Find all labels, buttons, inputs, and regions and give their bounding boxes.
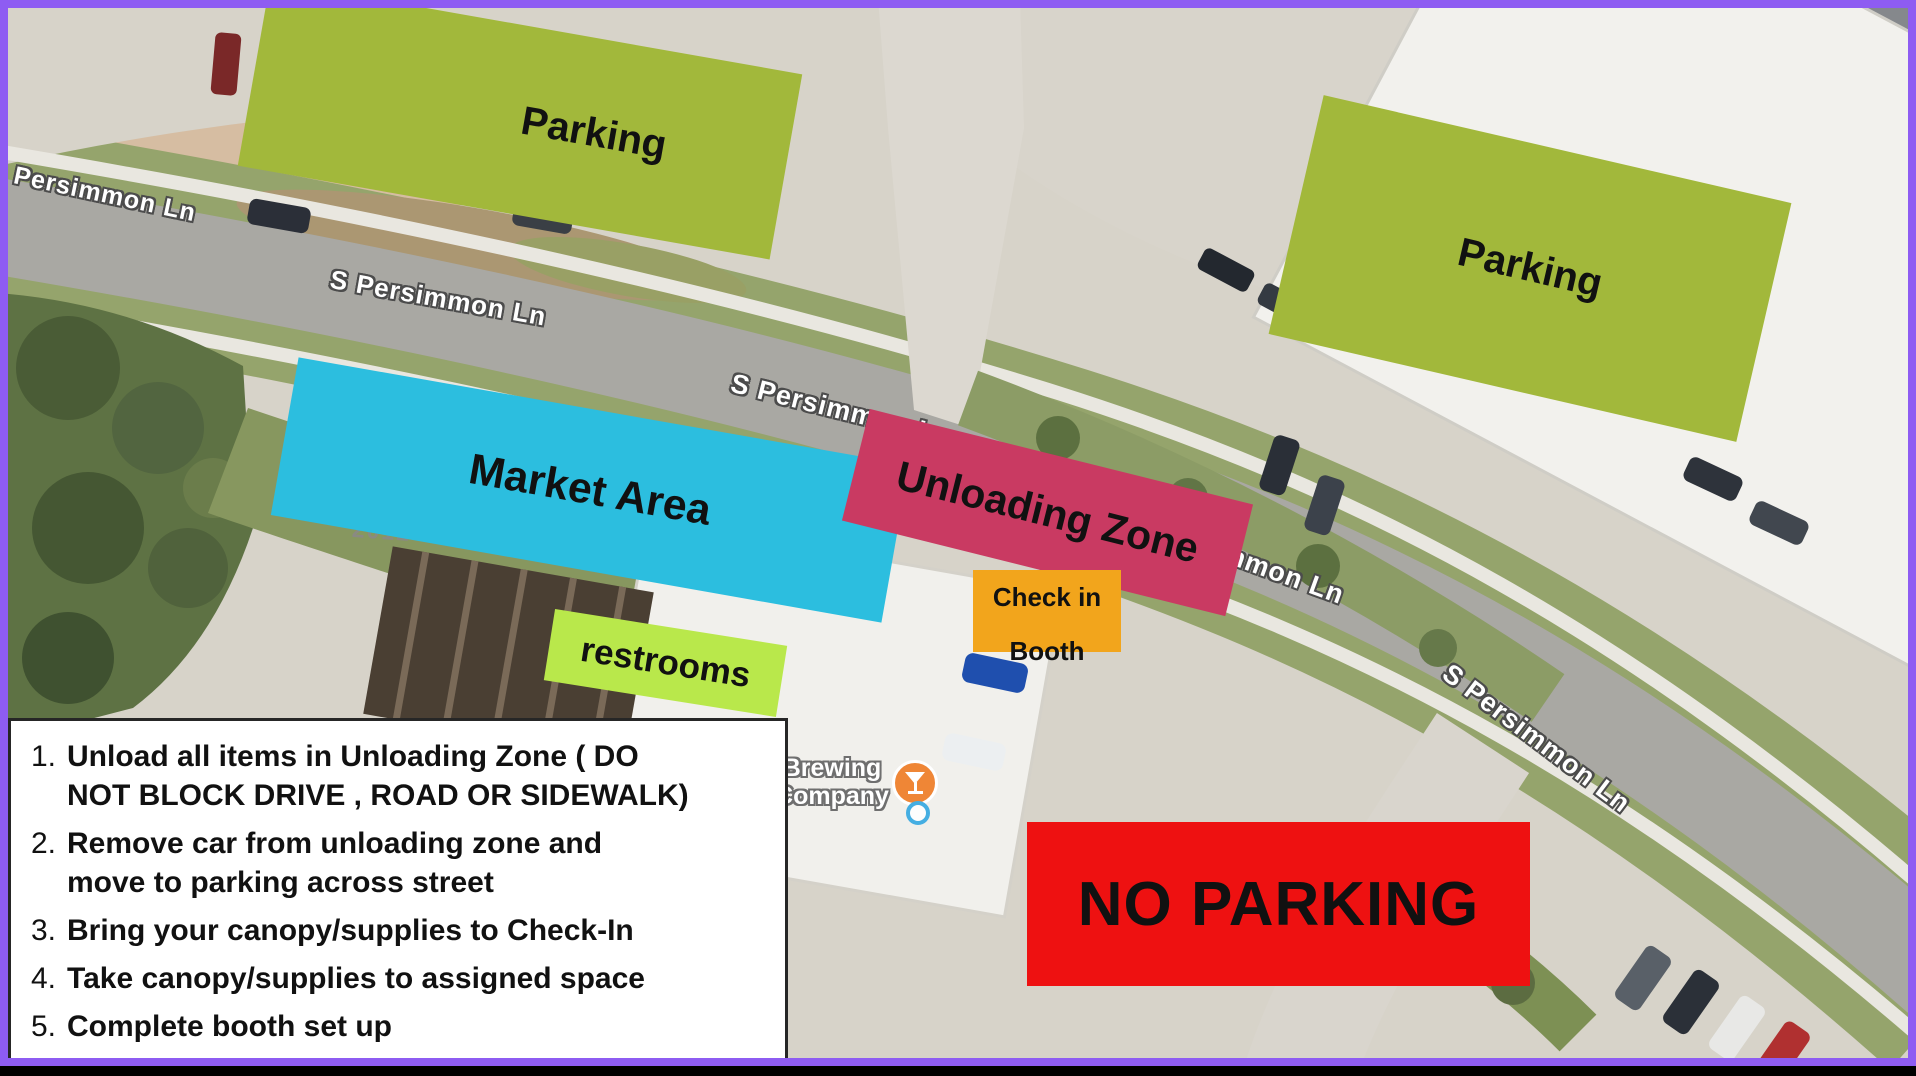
zone-no-parking-label: NO PARKING [1078,869,1480,940]
zone-check-in-booth: Check in Booth [973,570,1121,652]
zone-market-area-label: Market Area [465,445,714,536]
instruction-text: Unload all items in Unloading Zone ( DON… [67,737,689,815]
instruction-text: Remove car from unloading zone andmove t… [67,824,602,902]
instructions-list: 1.Unload all items in Unloading Zone ( D… [31,737,767,1046]
map-canvas: S Persimmon Ln S Persimmon Ln S Persimmo… [8,8,1908,1058]
instruction-item-3: 3.Bring your canopy/supplies to Check-In [31,911,767,950]
brewery-poi-pin [892,760,938,806]
zone-check-in-booth-label-line1: Check in [993,582,1101,612]
instruction-text: Take canopy/supplies to assigned space [67,959,645,998]
zone-no-parking: NO PARKING [1027,822,1530,986]
instruction-number: 4. [31,959,67,998]
zone-parking-northwest-label: Parking [518,98,670,168]
map-frame: S Persimmon Ln S Persimmon Ln S Persimmo… [0,0,1916,1066]
instruction-item-1: 1.Unload all items in Unloading Zone ( D… [31,737,767,815]
instruction-number: 2. [31,824,67,902]
instructions-panel: 1.Unload all items in Unloading Zone ( D… [8,718,788,1061]
instruction-item-2: 2. Remove car from unloading zone andmov… [31,824,767,902]
instruction-text: Complete booth set up [67,1007,392,1046]
brewery-poi-dot [906,801,930,825]
zone-parking-northeast-label: Parking [1453,230,1606,307]
instruction-item-5: 5.Complete booth set up [31,1007,767,1046]
instruction-number: 1. [31,737,67,815]
instruction-number: 3. [31,911,67,950]
zone-restrooms-label: restrooms [578,630,753,696]
instruction-item-4: 4.Take canopy/supplies to assigned space [31,959,767,998]
instruction-text: Bring your canopy/supplies to Check-In [67,911,634,950]
instruction-number: 5. [31,1007,67,1046]
cocktail-glass-icon [904,771,926,795]
zone-check-in-booth-label-line2: Booth [1009,636,1084,666]
